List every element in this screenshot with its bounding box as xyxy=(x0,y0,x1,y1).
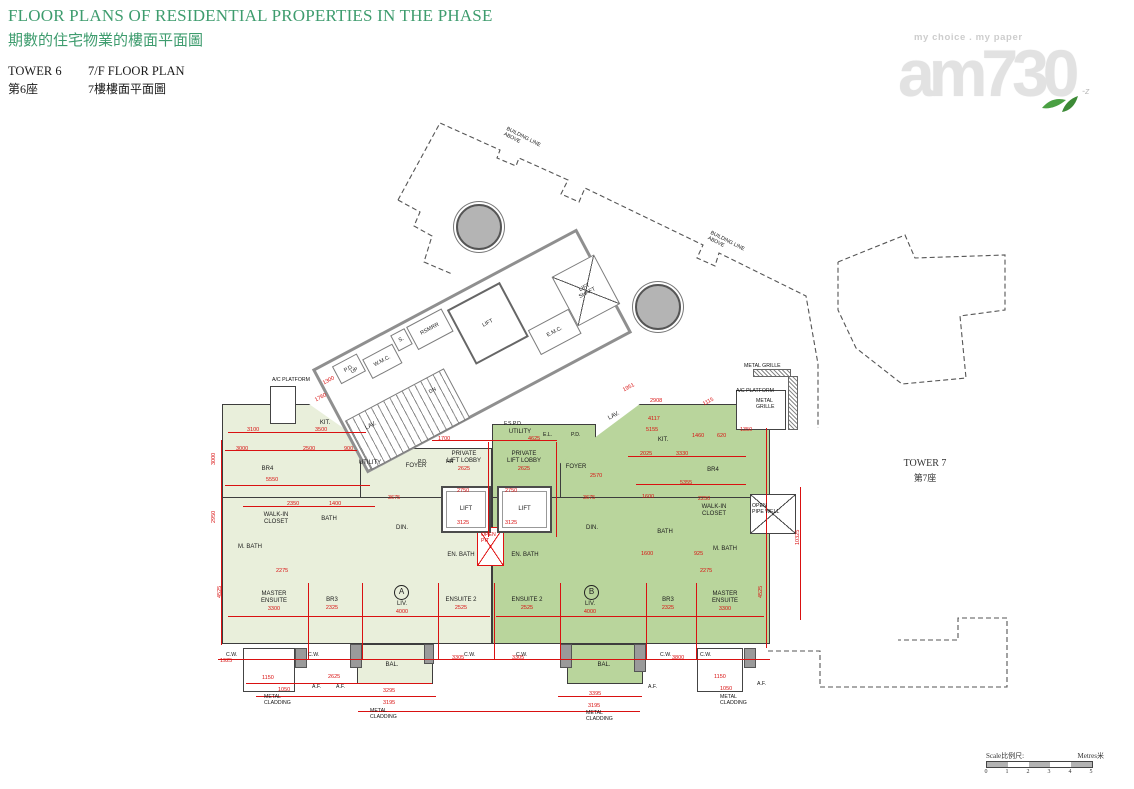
room-label: PRIVATE LIFT LOBBY xyxy=(507,451,541,465)
annotation-a-f-: A.F. xyxy=(648,684,657,690)
room-label: DIN. xyxy=(586,525,598,532)
core-room-lift: LIFT xyxy=(447,282,529,365)
room-master-ensuite: MASTER ENSUITE3300 xyxy=(694,590,756,614)
room-private-lift-lobby: PRIVATE LIFT LOBBY2625 xyxy=(496,450,552,474)
scale-segment xyxy=(1029,762,1050,767)
annotation-f-s-p-d-: F.S.P.D. xyxy=(504,421,522,427)
dimension-label: 5355 xyxy=(680,480,692,486)
dimension-label: 4525 xyxy=(758,586,764,598)
dimension-label: 10325 xyxy=(795,530,801,545)
annotation-metal-grille: METAL GRILLE xyxy=(744,363,781,369)
dimension-label: 1050 xyxy=(278,687,290,693)
dimension-line xyxy=(225,485,370,486)
dimension-line xyxy=(766,428,767,648)
annotation-p-d-: P.D. xyxy=(418,459,427,465)
room-dimension: 2325 xyxy=(326,605,338,611)
scale-segment xyxy=(987,762,1008,767)
room-kit-: KIT. xyxy=(638,432,688,448)
dimension-label: 1600 xyxy=(641,551,653,557)
room-label: ENSUITE 2 xyxy=(445,597,476,604)
dimension-line xyxy=(496,616,764,617)
room-dimension: 4000 xyxy=(584,609,596,615)
dimension-label: 3000 xyxy=(211,453,217,465)
scale-tick: 1 xyxy=(1006,769,1009,775)
dashed-outline xyxy=(838,235,1005,384)
scale-tick: 4 xyxy=(1069,769,1072,775)
dimension-label: 3195 xyxy=(383,700,395,706)
dimension-label: 3000 xyxy=(236,446,248,452)
dimension-label: 2350 xyxy=(287,501,299,507)
room-walk-in-closet: WALK-IN CLOSET xyxy=(686,500,742,522)
window-bay xyxy=(243,648,295,692)
scale-tick: 2 xyxy=(1027,769,1030,775)
dimension-label: 2950 xyxy=(211,511,217,523)
scale-tick: 0 xyxy=(985,769,988,775)
room-dimension: 2525 xyxy=(521,605,533,611)
scale-tick: 5 xyxy=(1090,769,1093,775)
room-label: FOYER xyxy=(566,464,587,471)
dimension-label: 5550 xyxy=(266,477,278,483)
room-label: BAL. xyxy=(385,662,398,669)
dimension-label: 925 xyxy=(694,551,703,557)
annotation-e-l-: E.L. xyxy=(543,432,552,438)
room-master-ensuite: MASTER ENSUITE3300 xyxy=(244,590,304,614)
room-label: BR3 xyxy=(662,597,674,604)
dimension-label: 3295 xyxy=(383,688,395,694)
room-label: LIFT xyxy=(518,506,530,513)
room-label: UTILITY xyxy=(509,429,531,436)
dimension-label: 3500 xyxy=(315,427,327,433)
dimension-label: 2908 xyxy=(650,398,662,404)
room-label: BR4 xyxy=(262,466,274,473)
wall-pier xyxy=(350,644,362,668)
room-label: BR4 xyxy=(707,467,719,474)
room-en-bath: EN. BATH xyxy=(500,548,550,562)
dimension-line xyxy=(221,440,222,645)
room-walk-in-closet: WALK-IN CLOSET xyxy=(248,508,304,530)
dimension-label: 2275 xyxy=(700,568,712,574)
scale-bar-ticks: 012345 xyxy=(984,769,1106,777)
room-m-bath: M. BATH xyxy=(702,542,748,556)
room-label: ENSUITE 2 xyxy=(511,597,542,604)
window-bay xyxy=(270,386,296,424)
room-dimension: 3300 xyxy=(268,606,280,612)
annotation-a-f-: A.F. xyxy=(336,684,345,690)
room-bal-: BAL. xyxy=(574,658,634,672)
dimension-label: 5155 xyxy=(646,427,658,433)
dimension-label: 2750 xyxy=(505,488,517,494)
room-br3: BR32325 xyxy=(312,596,352,612)
dimension-label: 1460 xyxy=(692,433,704,439)
room-dimension: 2625 xyxy=(518,466,530,472)
dimension-line xyxy=(696,583,697,660)
room-ensuite-2: ENSUITE 22525 xyxy=(434,596,488,612)
scale-segment xyxy=(1050,762,1071,767)
room-liv-: LIV.4000 xyxy=(570,600,610,616)
wall-pier xyxy=(744,648,756,668)
dimension-label: 3395 xyxy=(589,691,601,697)
dimension-line xyxy=(800,487,801,620)
dimension-line xyxy=(560,583,561,660)
dimension-label: 1150 xyxy=(714,674,726,680)
room-label: WALK-IN CLOSET xyxy=(264,512,289,526)
dimension-label: 3195 xyxy=(588,703,600,709)
dimension-label: 2025 xyxy=(640,451,652,457)
dashed-outline xyxy=(768,618,1007,687)
room-dimension: 4000 xyxy=(396,609,408,615)
dimension-label: 3305 xyxy=(452,655,464,661)
column-circle xyxy=(635,284,681,330)
annotation-a-f-: A.F. xyxy=(312,684,321,690)
unit-badge-a: A xyxy=(394,585,409,600)
room-label: LIFT xyxy=(460,506,472,513)
room-ensuite-2: ENSUITE 22525 xyxy=(500,596,554,612)
annotation-c-w-: C.W. xyxy=(226,652,237,658)
annotation-c-w-: C.W. xyxy=(516,652,527,658)
annotation-a-c-platform: A/C PLATFORM xyxy=(272,377,310,383)
metres-label: Metres米 xyxy=(1078,751,1104,761)
dashed-outline xyxy=(398,200,452,274)
room-bath: BATH xyxy=(312,512,346,526)
room-br4: BR4 xyxy=(688,462,738,478)
annotation-a-f-: A.F. xyxy=(757,681,766,687)
dimension-label: 4525 xyxy=(217,586,223,598)
room-label: BATH xyxy=(321,516,337,523)
dimension-label: 2250 xyxy=(698,496,710,502)
room-dimension: 3300 xyxy=(719,606,731,612)
annotation-metal-cladding: METAL CLADDING xyxy=(264,694,291,706)
dimension-line xyxy=(494,583,495,660)
room-br3: BR32325 xyxy=(648,596,688,612)
scale-bar-segments xyxy=(986,761,1093,768)
room-en-bath: EN. BATH xyxy=(436,548,486,562)
room-dimension: 2625 xyxy=(458,466,470,472)
core-room-p-d-: P.D. xyxy=(332,353,366,384)
wall-pier xyxy=(424,644,434,664)
room-label: M. BATH xyxy=(238,544,262,551)
annotation-hr: HR xyxy=(446,459,454,465)
column-circle xyxy=(456,204,502,250)
room-private-lift-lobby: PRIVATE LIFT LOBBY2625 xyxy=(436,450,492,474)
annotation-open-pipe-well: OPEN PIPE WELL xyxy=(752,503,779,515)
room-label: KIT. xyxy=(320,420,330,427)
tower7-label: TOWER 7 第7座 xyxy=(880,458,970,484)
room-label: BAL. xyxy=(597,662,610,669)
wall-pier xyxy=(634,644,646,672)
dimension-line xyxy=(438,583,439,660)
room-label: KIT. xyxy=(658,437,668,444)
room-din-: DIN. xyxy=(572,520,612,536)
wall-pier xyxy=(560,644,572,668)
dimension-line xyxy=(228,616,490,617)
room-label: EN. BATH xyxy=(447,552,474,559)
room-label: BR3 xyxy=(326,597,338,604)
dimension-label: 3675 xyxy=(388,495,400,501)
annotation-c-w-: C.W. xyxy=(660,652,671,658)
room-dimension: 2525 xyxy=(455,605,467,611)
room-m-bath: M. BATH xyxy=(228,540,272,554)
metal-grille-hatch xyxy=(788,376,798,430)
room-label: EN. BATH xyxy=(511,552,538,559)
floor-plan-page: FLOOR PLANS OF RESIDENTIAL PROPERTIES IN… xyxy=(0,0,1134,789)
dimension-label: 1925 xyxy=(220,658,232,664)
floor-plan-drawing: P.D.W.M.C.S.RSMRRLIFTE.M.C.LIFT SHAFTKIT… xyxy=(0,0,1134,789)
scale-segment xyxy=(1071,762,1092,767)
room-label: MASTER ENSUITE xyxy=(261,591,287,605)
tower7-label-en: TOWER 7 xyxy=(880,458,970,469)
scale-label: Scale比例尺: xyxy=(986,751,1024,761)
unit-badge-b: B xyxy=(584,585,599,600)
tower7-label-zh: 第7座 xyxy=(880,471,970,484)
room-label: M. BATH xyxy=(713,546,737,553)
annotation-c-w-: C.W. xyxy=(308,652,319,658)
scale-bar: Scale比例尺: Metres米 012345 xyxy=(984,751,1106,777)
dimension-line xyxy=(488,442,489,537)
room-dimension: 2325 xyxy=(662,605,674,611)
room-label: LIV. xyxy=(585,601,595,608)
dimension-label: 1350 xyxy=(740,427,752,433)
scale-segment xyxy=(1008,762,1029,767)
room-label: BATH xyxy=(657,529,673,536)
room-bal-: BAL. xyxy=(362,658,422,672)
annotation-open-pit: OPEN PIT xyxy=(481,532,496,544)
dimension-label: 2275 xyxy=(276,568,288,574)
dimension-label: 2500 xyxy=(303,446,315,452)
room-din-: DIN. xyxy=(382,520,422,536)
annotation-metal-cladding: METAL CLADDING xyxy=(586,710,613,722)
dimension-label: 3100 xyxy=(247,427,259,433)
dimension-line xyxy=(308,583,309,660)
annotation-a-c-platform: A/C PLATFORM xyxy=(736,388,774,394)
dimension-label: 1600 xyxy=(642,494,654,500)
dimension-line xyxy=(646,583,647,660)
dimension-line xyxy=(362,583,363,660)
room-label: DIN. xyxy=(396,525,408,532)
dimension-label: 1700 xyxy=(438,436,450,442)
room-label: UTILITY xyxy=(359,460,381,467)
room-label: WALK-IN CLOSET xyxy=(702,504,727,518)
dimension-label: 2570 xyxy=(590,473,602,479)
dimension-label: 900 xyxy=(344,446,353,452)
dimension-label: 2625 xyxy=(328,674,340,680)
annotation-metal-grille: METAL GRILLE xyxy=(756,398,774,410)
dimension-label: 3125 xyxy=(457,520,469,526)
dimension-label: 3675 xyxy=(583,495,595,501)
dimension-label: 3125 xyxy=(505,520,517,526)
annotation-metal-cladding: METAL CLADDING xyxy=(370,708,397,720)
room-br4: BR4 xyxy=(240,460,295,478)
room-label: MASTER ENSUITE xyxy=(712,591,738,605)
dimension-label: 3800 xyxy=(672,655,684,661)
annotation-metal-cladding: METAL CLADDING xyxy=(720,694,747,706)
dimension-label: 620 xyxy=(717,433,726,439)
annotation-p-d-: P.D. xyxy=(571,432,580,438)
dimension-label: 4625 xyxy=(528,436,540,442)
annotation-c-w-: C.W. xyxy=(700,652,711,658)
dimension-label: 1400 xyxy=(329,501,341,507)
dimension-line xyxy=(243,506,375,507)
dimension-label: 3330 xyxy=(676,451,688,457)
metal-grille-hatch xyxy=(753,369,791,377)
room-utility: UTILITY xyxy=(348,457,392,470)
dimension-label: 4117 xyxy=(648,416,660,422)
room-foyer: FOYER xyxy=(396,460,436,473)
dimension-label: 1150 xyxy=(262,675,274,681)
core-room-rsmrr: RSMRR xyxy=(406,308,454,350)
room-label: LAV. xyxy=(364,420,378,432)
annotation-c-w-: C.W. xyxy=(464,652,475,658)
room-bath: BATH xyxy=(648,525,682,539)
dimension-label: 1050 xyxy=(720,686,732,692)
room-label: LIV. xyxy=(397,601,407,608)
wall-pier xyxy=(295,648,307,668)
room-label: LAV. xyxy=(607,410,621,422)
dimension-label: 2750 xyxy=(457,488,469,494)
dimension-line xyxy=(556,442,557,537)
room-liv-: LIV.4000 xyxy=(382,600,422,616)
scale-tick: 3 xyxy=(1048,769,1051,775)
